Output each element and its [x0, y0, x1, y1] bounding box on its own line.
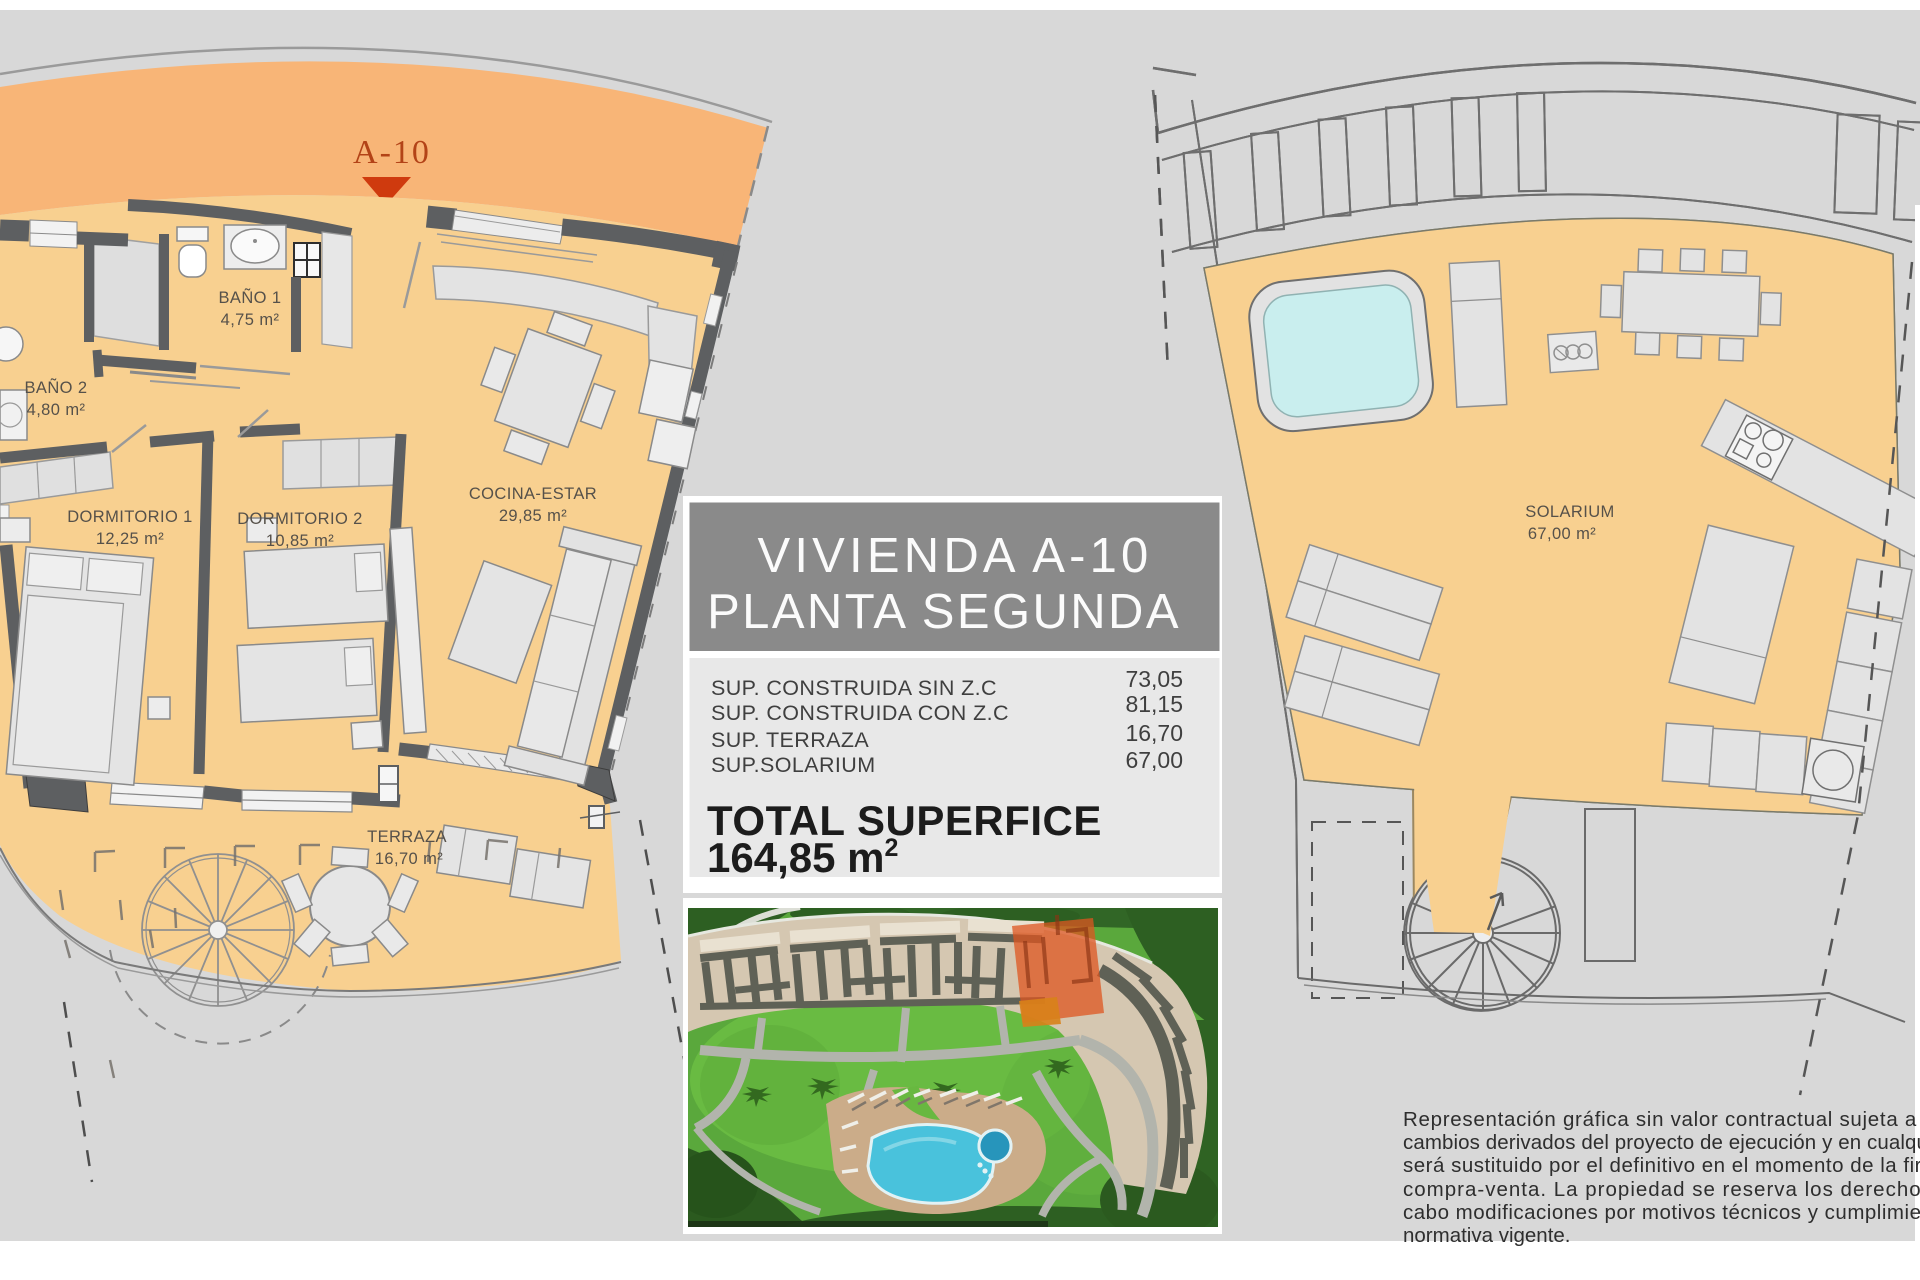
svg-text:A-10: A-10	[353, 134, 431, 171]
svg-text:29,85 m²: 29,85 m²	[499, 507, 567, 525]
svg-text:SUP.SOLARIUM: SUP.SOLARIUM	[711, 753, 876, 777]
svg-text:67,00 m²: 67,00 m²	[1528, 525, 1596, 543]
svg-text:será sustituido por el definit: será sustituido por el definitivo en el …	[1403, 1154, 1920, 1177]
svg-text:DORMITORIO 1: DORMITORIO 1	[67, 508, 193, 526]
svg-text:BAÑO 2: BAÑO 2	[25, 377, 88, 397]
svg-text:BAÑO 1: BAÑO 1	[219, 287, 282, 307]
svg-text:12,25 m²: 12,25 m²	[96, 530, 164, 548]
svg-text:Representación gráfica sin val: Representación gráfica sin valor contrac…	[1403, 1108, 1920, 1131]
svg-text:DORMITORIO 2: DORMITORIO 2	[237, 510, 363, 528]
svg-text:normativa vigente.: normativa vigente.	[1403, 1224, 1571, 1247]
svg-text:4,80 m²: 4,80 m²	[27, 401, 86, 419]
svg-text:SUP. CONSTRUIDA SIN Z.C: SUP. CONSTRUIDA SIN Z.C	[711, 676, 997, 700]
svg-text:COCINA-ESTAR: COCINA-ESTAR	[469, 485, 597, 503]
svg-text:SOLARIUM: SOLARIUM	[1525, 503, 1614, 521]
svg-text:16,70: 16,70	[1125, 720, 1183, 746]
svg-text:SUP. TERRAZA: SUP. TERRAZA	[711, 728, 869, 752]
svg-text:81,15: 81,15	[1125, 691, 1183, 717]
svg-text:VIVIENDA A-10: VIVIENDA A-10	[757, 529, 1152, 583]
svg-text:TERRAZA: TERRAZA	[367, 828, 447, 846]
svg-text:cabo modificaciones por motivo: cabo modificaciones por motivos técnicos…	[1403, 1201, 1920, 1224]
svg-text:PLANTA SEGUNDA: PLANTA SEGUNDA	[707, 585, 1181, 639]
svg-text:SUP. CONSTRUIDA CON Z.C: SUP. CONSTRUIDA CON Z.C	[711, 701, 1009, 725]
svg-text:73,05: 73,05	[1125, 666, 1183, 692]
svg-text:cambios derivados del proyecto: cambios derivados del proyecto de ejecuc…	[1403, 1131, 1920, 1154]
svg-text:10,85 m²: 10,85 m²	[266, 532, 334, 550]
svg-text:4,75 m²: 4,75 m²	[221, 311, 280, 329]
svg-text:compra-venta. La propiedad se: compra-venta. La propiedad se reserva lo…	[1403, 1178, 1920, 1201]
svg-text:67,00: 67,00	[1125, 747, 1183, 773]
svg-text:16,70 m²: 16,70 m²	[375, 850, 443, 868]
svg-text:164,85 m2: 164,85 m2	[707, 834, 898, 881]
